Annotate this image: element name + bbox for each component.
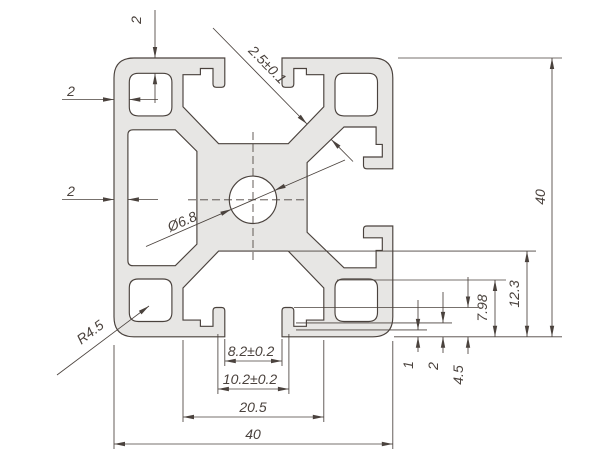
dim-label: 2 — [66, 83, 75, 99]
leader-line — [57, 306, 149, 375]
arrowhead-icon — [416, 319, 420, 330]
dim-top-wall: 2 — [128, 10, 157, 103]
dim-label: 4.5 — [450, 365, 466, 385]
arrowhead-icon — [493, 280, 497, 291]
dim-label: 1 — [400, 361, 416, 369]
arrowhead-icon — [271, 359, 282, 363]
arrowhead-icon — [129, 97, 140, 101]
dim-label: 2 — [66, 183, 75, 199]
dim-label: 40 — [245, 426, 261, 442]
arrowhead-icon — [218, 387, 229, 391]
arrowhead-icon — [139, 306, 149, 314]
arrowhead-icon — [525, 251, 529, 262]
dim-left-wall-upper: 2 — [62, 83, 158, 102]
arrowhead-icon — [128, 197, 139, 201]
arrowhead-icon — [225, 359, 236, 363]
dim-label: 2 — [128, 16, 144, 25]
arrowhead-icon — [525, 326, 529, 337]
arrowhead-icon — [550, 58, 554, 69]
arrowhead-icon — [441, 337, 445, 348]
arrowhead-icon — [183, 415, 194, 419]
arrowhead-icon — [441, 312, 445, 323]
arrowhead-icon — [114, 442, 125, 446]
dim-label: 10.2±0.2 — [223, 371, 278, 387]
arrowhead-icon — [103, 197, 114, 201]
arrowhead-icon — [466, 337, 470, 348]
dim-label: 2 — [425, 362, 441, 371]
arrowhead-icon — [278, 387, 289, 391]
dim-left-wall-lower: 2 — [62, 183, 158, 202]
arrowhead-icon — [550, 326, 554, 337]
dim-slot-opening: 8.2±0.2 — [225, 339, 282, 366]
arrowhead-icon — [382, 442, 393, 446]
dim-label: R4.5 — [73, 317, 106, 348]
arrowhead-icon — [493, 326, 497, 337]
dim-label: 8.2±0.2 — [228, 343, 275, 359]
arrowhead-icon — [153, 47, 157, 58]
dim-label: 40 — [532, 189, 548, 205]
technical-drawing-canvas: 2 2 2 2.5±0.1 Ø6.8 R4.5 — [0, 0, 600, 450]
arrowhead-icon — [466, 297, 470, 308]
arrowhead-icon — [313, 415, 324, 419]
dim-corner-radius: R4.5 — [57, 306, 149, 375]
dim-label: 12.3 — [506, 280, 522, 307]
dim-label: 20.5 — [238, 399, 266, 415]
arrowhead-icon — [153, 73, 157, 84]
arrowhead-icon — [416, 337, 420, 348]
arrowhead-icon — [103, 97, 114, 101]
extrusion-profile-drawing: 2 2 2 2.5±0.1 Ø6.8 R4.5 — [0, 0, 600, 450]
